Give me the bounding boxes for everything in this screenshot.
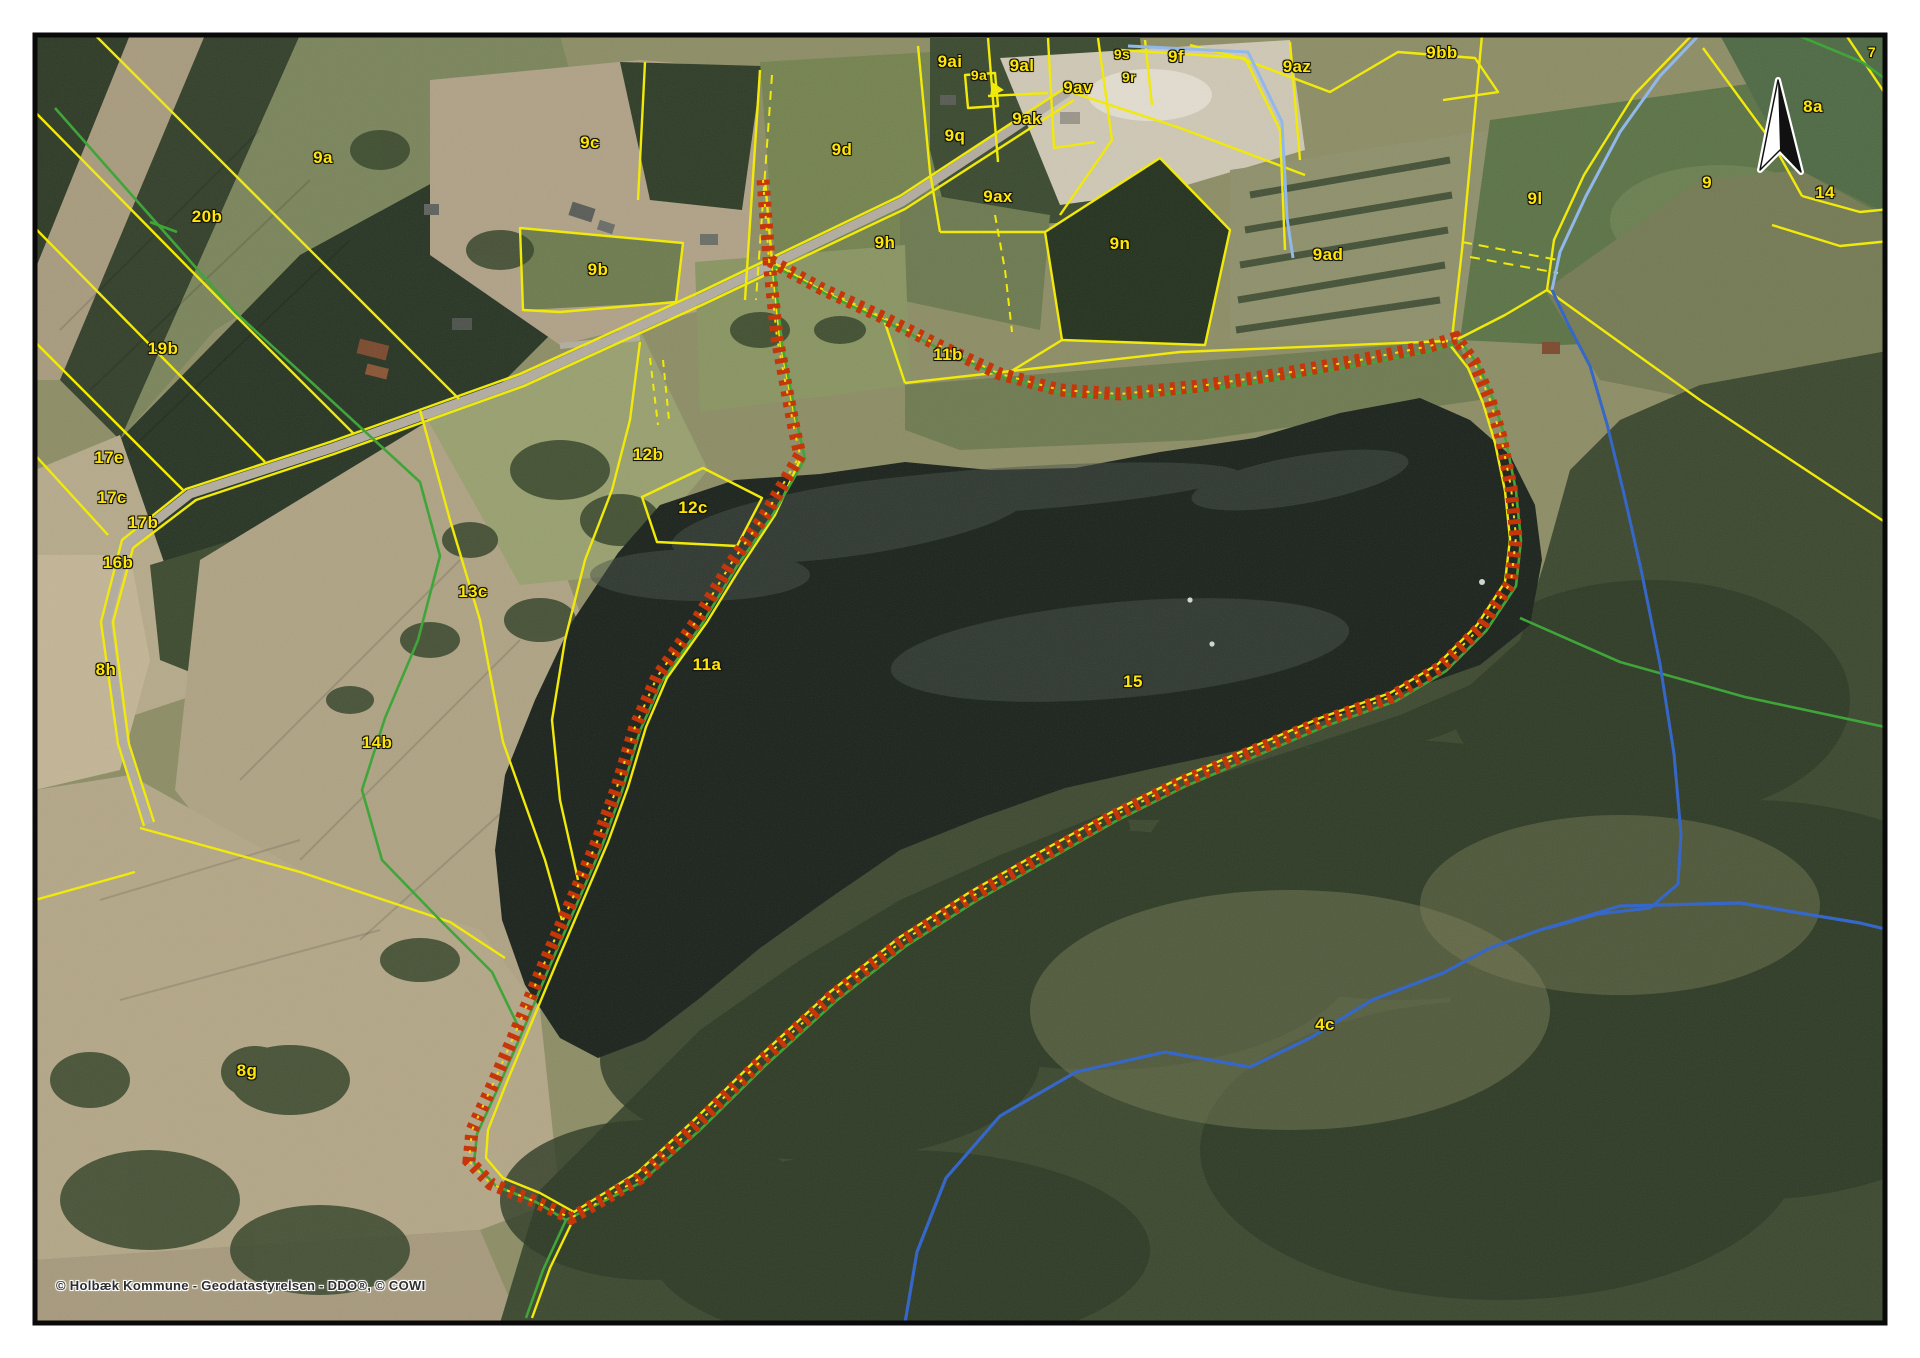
aerial-map-canvas bbox=[0, 0, 1920, 1358]
terrain-layer bbox=[35, 33, 1920, 1350]
map-page: 9a20b19b17e17c17b16b8h14b8g13c12b12c11a9… bbox=[0, 0, 1920, 1358]
copyright-attribution: © Holbæk Kommune - Geodatastyrelsen - DD… bbox=[56, 1278, 426, 1293]
